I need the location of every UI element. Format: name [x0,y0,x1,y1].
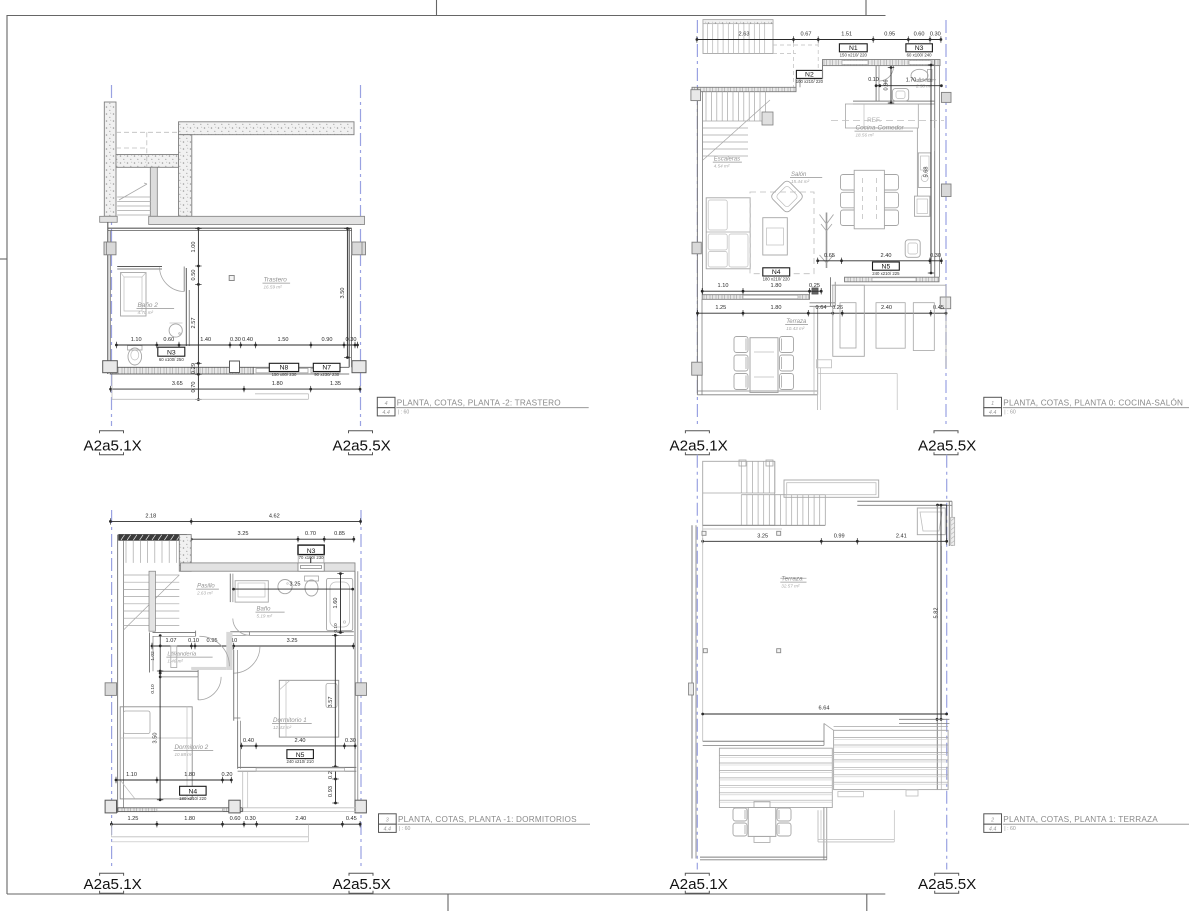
svg-text:1.10: 1.10 [126,772,137,778]
svg-text:Lavandería: Lavandería [167,652,197,658]
svg-text:0.40: 0.40 [243,738,254,744]
svg-text:2.40: 2.40 [295,738,306,744]
svg-text:0.10: 0.10 [150,684,156,694]
svg-text:5.68: 5.68 [924,167,930,178]
svg-text:3.57: 3.57 [328,697,334,708]
svg-text:150 x80/ 230: 150 x80/ 230 [272,372,297,377]
svg-text:N3: N3 [307,548,316,555]
svg-text:16.59 m²: 16.59 m² [264,285,283,290]
svg-text:240 x210/ 225: 240 x210/ 225 [872,271,900,276]
svg-text:3.25: 3.25 [287,638,298,644]
svg-text:Salón: Salón [791,172,807,178]
svg-text:N4: N4 [188,788,197,795]
svg-text:1.40: 1.40 [200,337,211,343]
svg-text:10.43 m²: 10.43 m² [786,326,805,331]
svg-text:6.64: 6.64 [819,706,830,712]
svg-text:0.26: 0.26 [832,305,843,311]
svg-text:100 x210/ 220: 100 x210/ 220 [796,79,824,84]
svg-text:0.29: 0.29 [191,363,197,374]
svg-text:4.4: 4.4 [384,827,392,833]
svg-text:A2a5.5X: A2a5.5X [333,876,391,893]
svg-text:2.63: 2.63 [739,32,750,38]
svg-text:2.57: 2.57 [191,318,197,329]
svg-text:240 x210/ 210: 240 x210/ 210 [286,759,314,764]
svg-text:180 x210/ 220: 180 x210/ 220 [763,277,791,282]
svg-text:4.4: 4.4 [382,410,390,416]
svg-text:0.95: 0.95 [884,32,895,38]
svg-text:90 x230/ 230: 90 x230/ 230 [314,372,339,377]
svg-text:Terraza: Terraza [781,576,803,583]
svg-text:1.25: 1.25 [127,816,138,822]
svg-text:Terraza: Terraza [786,319,807,325]
svg-text:0.30: 0.30 [930,32,941,38]
svg-text:1.80: 1.80 [272,381,283,387]
svg-text:N1: N1 [849,45,858,52]
svg-text:A2a5.5X: A2a5.5X [918,876,976,893]
svg-text:0.99: 0.99 [834,533,845,539]
svg-text:10.88 m²: 10.88 m² [175,752,194,757]
svg-text:0.85: 0.85 [334,531,345,537]
svg-text:1.70: 1.70 [906,78,917,84]
svg-text:1.10: 1.10 [718,283,729,289]
svg-text:0.64: 0.64 [816,305,827,311]
svg-text:PLANTA, COTAS, PLANTA -2: TRAS: PLANTA, COTAS, PLANTA -2: TRASTERO [397,399,561,408]
svg-text:| : 60: | : 60 [1004,826,1016,832]
svg-text:Escaleras: Escaleras [714,157,740,163]
svg-text:1.10: 1.10 [131,337,142,343]
svg-text:A2a5.5X: A2a5.5X [918,438,976,455]
svg-text:Dormitorio 1: Dormitorio 1 [273,717,307,724]
svg-text:Cocina-Comedor: Cocina-Comedor [856,125,905,132]
svg-text:1.51: 1.51 [841,32,852,38]
svg-text:32.57 m²: 32.57 m² [781,584,800,589]
svg-text:1.60: 1.60 [333,598,339,609]
svg-text:4.4: 4.4 [989,410,997,416]
svg-text:150 x210/ 220: 150 x210/ 220 [840,52,868,57]
svg-text:2.40: 2.40 [881,253,892,259]
svg-text:5.82: 5.82 [934,608,940,619]
svg-text:0.93: 0.93 [328,786,334,797]
svg-text:| : 60: | : 60 [398,410,410,416]
svg-text:0.20: 0.20 [222,772,233,778]
svg-text:3: 3 [386,817,389,823]
svg-text:PLANTA, COTAS, PLANTA 0: COCIN: PLANTA, COTAS, PLANTA 0: COCINA-SALÓN [1003,398,1183,408]
svg-text:1.50: 1.50 [278,337,289,343]
svg-text:| : 60: | : 60 [399,826,411,832]
svg-text:0.10: 0.10 [188,638,199,644]
svg-text:0.70: 0.70 [191,382,197,393]
svg-text:5.19 m²: 5.19 m² [257,614,273,619]
svg-text:N8: N8 [280,365,289,372]
svg-text:1.07: 1.07 [166,638,177,644]
svg-text:A2a5.1X: A2a5.1X [84,438,142,455]
svg-text:0.96: 0.96 [884,80,890,91]
svg-text:Trastero: Trastero [264,277,288,284]
svg-text:2.18: 2.18 [145,513,156,519]
svg-text:1.00: 1.00 [191,242,197,253]
svg-text:PLANTA, COTAS, PLANTA -1: DORM: PLANTA, COTAS, PLANTA -1: DORMITORIOS [398,815,577,824]
svg-text:1.46 m²: 1.46 m² [167,659,183,664]
svg-text:Baño 2: Baño 2 [138,302,159,309]
svg-text:A2a5.1X: A2a5.1X [670,876,728,893]
svg-text:1.25: 1.25 [715,305,726,311]
svg-text:2.40: 2.40 [881,305,892,311]
svg-text:60 x100/ 250: 60 x100/ 250 [159,357,184,362]
svg-text:Dormitorio 2: Dormitorio 2 [175,744,209,751]
svg-text:1.80: 1.80 [771,283,782,289]
svg-text:180 x210/ 220: 180 x210/ 220 [179,796,207,801]
svg-text:N3: N3 [915,45,924,52]
svg-text:0.25: 0.25 [809,283,820,289]
svg-text:15.44 m²: 15.44 m² [791,179,810,184]
svg-text:N2: N2 [805,72,814,79]
svg-text:0.65: 0.65 [824,253,835,259]
svg-text:0.60: 0.60 [230,816,241,822]
svg-text:Pasillo: Pasillo [197,584,215,590]
svg-text:0.67: 0.67 [801,32,812,38]
svg-text:N4: N4 [772,269,781,276]
svg-text:1.80: 1.80 [771,305,782,311]
svg-text:0.10: 0.10 [868,77,879,83]
svg-text:1.80: 1.80 [184,772,195,778]
svg-text:3.25: 3.25 [290,581,301,587]
svg-text:N5: N5 [296,752,305,759]
svg-text:Baño: Baño [257,607,272,613]
svg-text:0.70: 0.70 [305,531,316,537]
svg-text:3.25: 3.25 [757,533,768,539]
svg-text:2.41: 2.41 [896,533,907,539]
svg-text:4.70 m²: 4.70 m² [138,310,154,315]
svg-text:0.30: 0.30 [230,337,241,343]
svg-text:18.56 m²: 18.56 m² [856,133,875,138]
svg-text:0.50: 0.50 [191,270,197,281]
svg-text:0.30: 0.30 [345,738,356,744]
svg-text:4: 4 [385,401,388,407]
svg-text:N5: N5 [882,263,891,270]
svg-text:4.62: 4.62 [269,513,280,519]
svg-text:0.90: 0.90 [322,337,333,343]
svg-text:A2a5.5X: A2a5.5X [333,438,391,455]
svg-text:0.60: 0.60 [163,337,174,343]
svg-text:70 x100/ 230: 70 x100/ 230 [299,555,324,560]
svg-text:N7: N7 [322,365,331,372]
svg-text:2.40: 2.40 [295,816,306,822]
svg-text:1: 1 [991,401,994,407]
svg-text:2.63 m²: 2.63 m² [196,591,213,596]
svg-text:N3: N3 [167,349,176,356]
svg-text:12.43 m²: 12.43 m² [273,725,292,730]
svg-text:0.60: 0.60 [914,32,925,38]
svg-text:60 x100/ 240: 60 x100/ 240 [907,52,932,57]
svg-text:4.54 m²: 4.54 m² [714,164,730,169]
svg-text:4.4: 4.4 [989,827,997,833]
svg-text:PLANTA, COTAS, PLANTA 1: TERRA: PLANTA, COTAS, PLANTA 1: TERRAZA [1003,815,1158,824]
svg-text:3.50: 3.50 [153,733,159,744]
svg-text:1.35: 1.35 [330,381,341,387]
svg-text:3.65: 3.65 [172,381,183,387]
svg-text:0.40: 0.40 [242,337,253,343]
svg-text:3.50: 3.50 [340,288,346,299]
svg-text:0.10: 0.10 [333,623,339,633]
svg-text:| : 60: | : 60 [1004,410,1016,416]
svg-text:A2a5.1X: A2a5.1X [84,876,142,893]
svg-text:2: 2 [990,817,994,823]
svg-text:0.45: 0.45 [346,816,357,822]
svg-text:A2a5.1X: A2a5.1X [670,438,728,455]
svg-text:0.30: 0.30 [245,816,256,822]
svg-text:0.30: 0.30 [930,253,941,259]
svg-text:3.25: 3.25 [238,531,249,537]
svg-text:1.80: 1.80 [184,816,195,822]
